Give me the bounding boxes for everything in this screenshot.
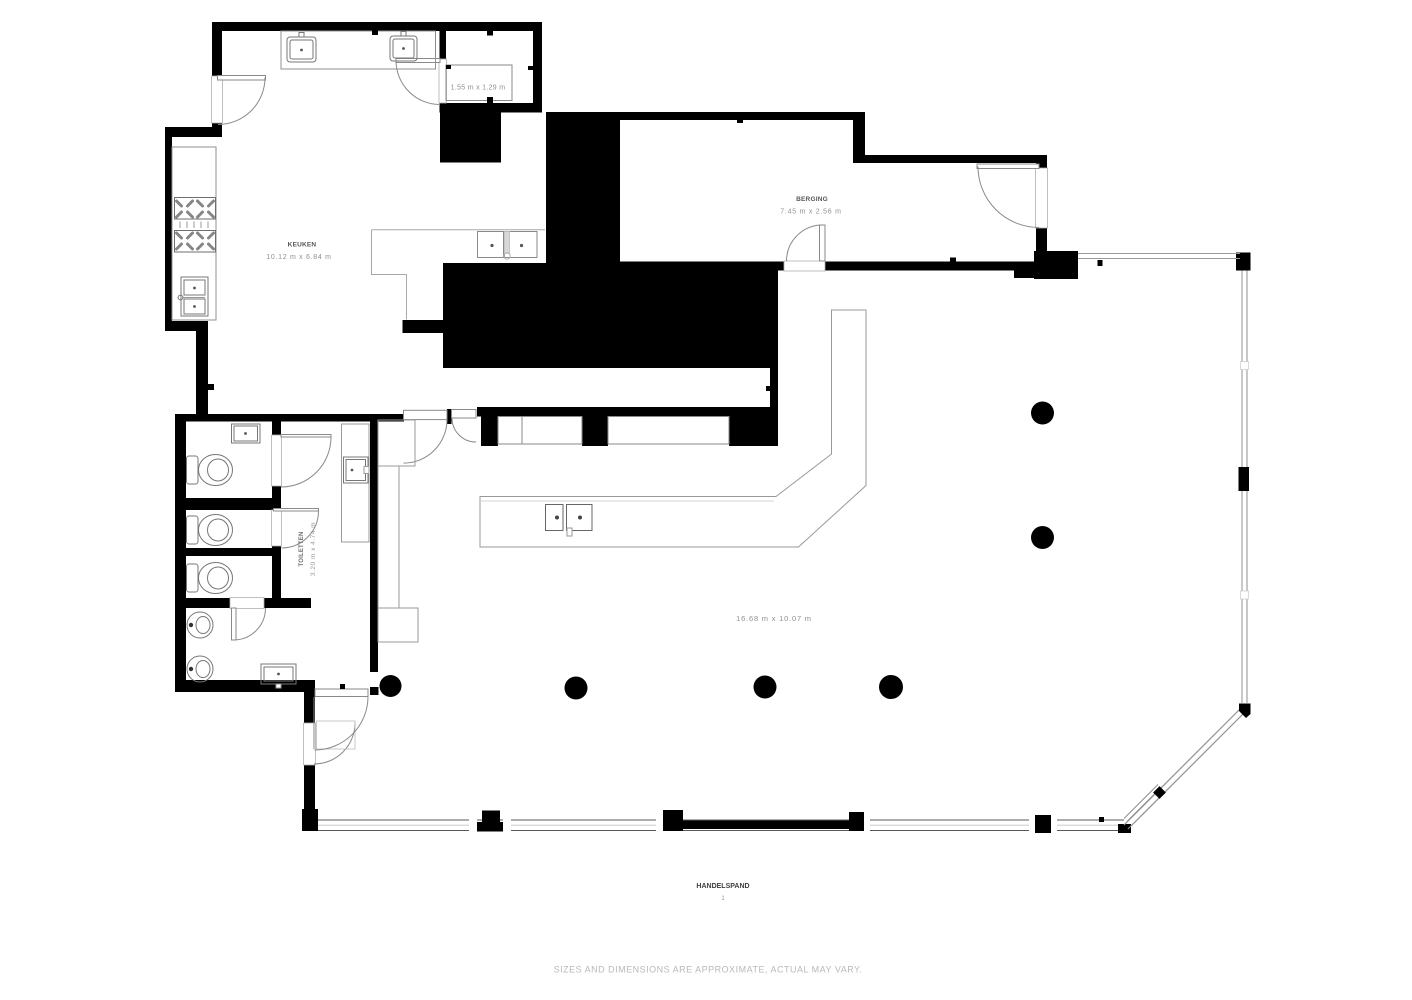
svg-text:16.68 m x 10.07 m: 16.68 m x 10.07 m: [736, 614, 812, 623]
svg-text:3.20 m x 4.74 m: 3.20 m x 4.74 m: [310, 522, 317, 576]
svg-text:BERGING: BERGING: [796, 196, 828, 203]
svg-text:KEUKEN: KEUKEN: [288, 242, 317, 249]
svg-text:TOILETTEN: TOILETTEN: [299, 531, 305, 566]
svg-text:1.55 m x 1.29 m: 1.55 m x 1.29 m: [451, 85, 506, 92]
svg-text:SIZES AND DIMENSIONS ARE APPRO: SIZES AND DIMENSIONS ARE APPROXIMATE, AC…: [554, 965, 863, 975]
svg-text:HANDELSPAND: HANDELSPAND: [696, 883, 749, 890]
svg-text:7.45 m x 2.56 m: 7.45 m x 2.56 m: [780, 209, 841, 216]
svg-text:10.12 m x 6.84 m: 10.12 m x 6.84 m: [266, 254, 331, 261]
